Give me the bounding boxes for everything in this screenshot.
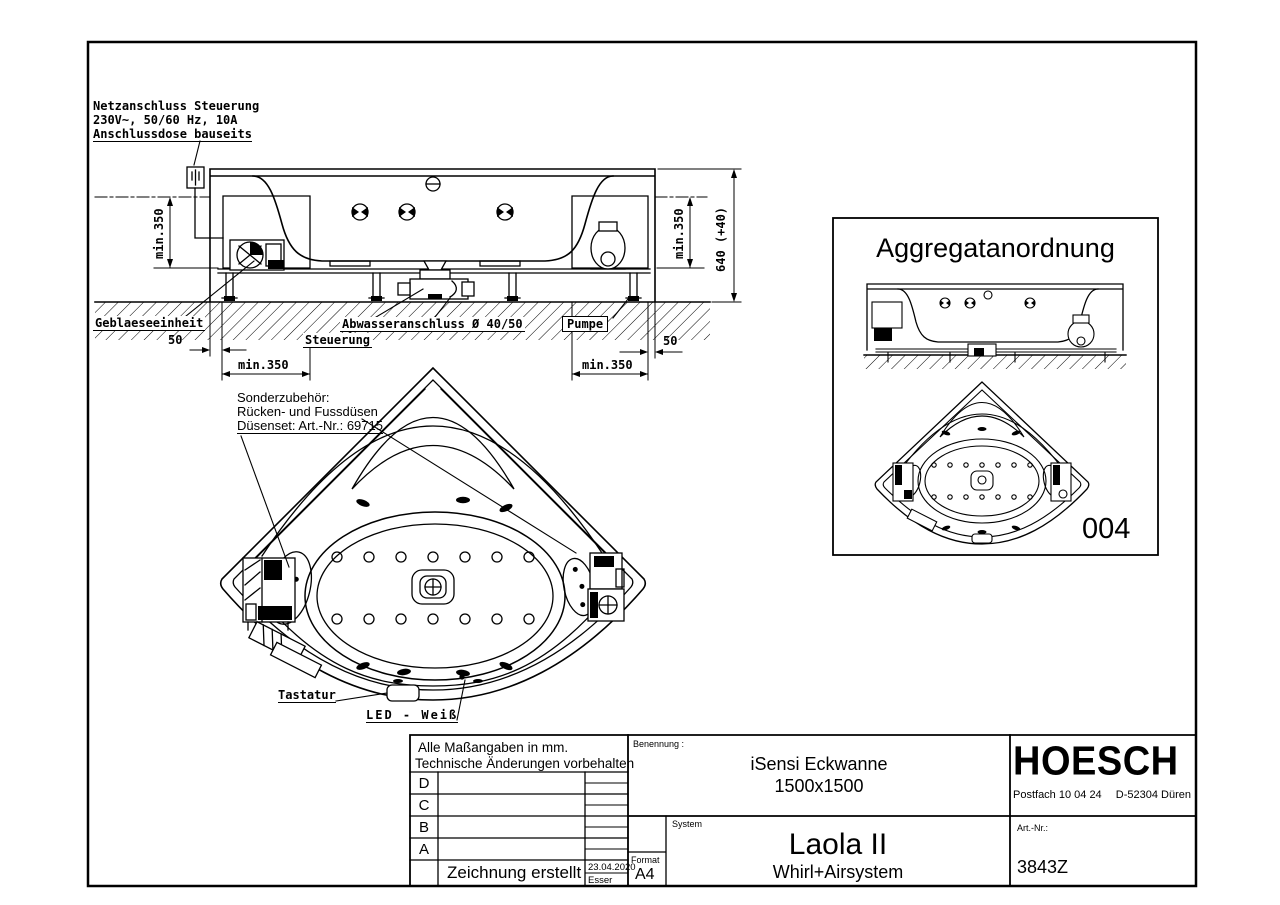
tb-format-value: A4 — [635, 866, 655, 885]
tb-benennung-label: Benennung : — [633, 739, 684, 750]
drawing-sheet: Netzanschluss Steuerung 230V~, 50/60 Hz,… — [0, 0, 1280, 905]
aggregat-position-code: 004 — [1082, 512, 1130, 546]
aggregat-title: Aggregatanordnung — [833, 233, 1158, 265]
dim-min350-bottom-right: min.350 — [580, 358, 635, 372]
dim-min350-bottom-left: min.350 — [236, 358, 291, 372]
tb-artnr-label: Art.-Nr.: — [1017, 823, 1048, 834]
tb-system-name: Laola II — [666, 827, 1010, 862]
led-label: LED - Weiß — [366, 708, 458, 723]
whirl-jet-icons — [352, 177, 513, 220]
plan-blower — [243, 558, 295, 630]
dim-min350-left-vertical: min.350 — [152, 208, 166, 259]
tastatur-label: Tastatur — [278, 688, 336, 703]
keypad — [387, 685, 419, 701]
tb-revision-letter-a: A — [410, 841, 438, 859]
tb-note2: Technische Änderungen vorbehalten — [415, 756, 634, 772]
aggregat-box — [833, 218, 1158, 555]
tb-artnr-value: 3843Z — [1017, 857, 1068, 878]
blower-unit — [230, 240, 284, 270]
hoesch-logo: HOESCH — [1013, 738, 1179, 786]
aggregat-jet-grid — [932, 463, 1032, 499]
dim-gap-right: 50 — [663, 334, 677, 348]
control-box — [249, 622, 322, 678]
dim-gap-left: 50 — [168, 333, 182, 347]
tb-address-left: Postfach 10 04 24 — [1013, 789, 1102, 802]
dim-min350-right-vertical: min.350 — [672, 208, 686, 259]
tb-revision-letter-c: C — [410, 797, 438, 815]
tb-system-subtitle: Whirl+Airsystem — [666, 862, 1010, 883]
tb-created-by: Esser — [588, 875, 612, 886]
netzanschluss-note-line3: Anschlussdose bauseits — [93, 127, 252, 142]
plan-pump — [588, 553, 624, 621]
tb-note1: Alle Maßangaben in mm. — [418, 740, 568, 756]
dim-overall-height: 640 (+40) — [714, 207, 728, 272]
netzanschluss-note-line1: Netzanschluss Steuerung — [93, 99, 259, 113]
plan-drain — [412, 570, 454, 604]
geblaeseeinheit-label: Geblaeseeinheit — [93, 316, 205, 331]
tb-address: Postfach 10 04 24 D-52304 Düren — [1013, 789, 1191, 802]
mains-connection — [187, 141, 223, 238]
aggregat-elevation — [864, 284, 1126, 369]
abwasseranschluss-label: Abwasseranschluss Ø 40/50 — [340, 317, 525, 332]
pump-unit — [591, 222, 625, 269]
elevation-view — [95, 141, 741, 380]
tb-created-label: Zeichnung erstellt — [447, 863, 581, 883]
tb-created-date: 23.04.2020 — [588, 862, 636, 873]
deck-jets — [355, 497, 513, 683]
drain-assembly — [398, 261, 474, 299]
tb-name-line2: 1500x1500 — [628, 776, 1010, 797]
tb-name-line1: iSensi Eckwanne — [628, 754, 1010, 775]
steuerung-label: Steuerung — [303, 333, 372, 348]
sonderzubehoer-line3: Düsenset: Art.-Nr.: 69715 — [237, 418, 383, 434]
tb-format-label: Format — [631, 855, 660, 866]
jet-pockets — [262, 547, 600, 628]
tb-address-right: D-52304 Düren — [1116, 789, 1191, 802]
netzanschluss-note-line2: 230V~, 50/60 Hz, 10A — [93, 113, 238, 127]
aggregat-plan — [875, 382, 1089, 544]
pumpe-label: Pumpe — [562, 316, 608, 332]
tb-revision-letter-d: D — [410, 775, 438, 793]
led-dot — [459, 674, 464, 679]
tb-revision-letter-b: B — [410, 819, 438, 837]
